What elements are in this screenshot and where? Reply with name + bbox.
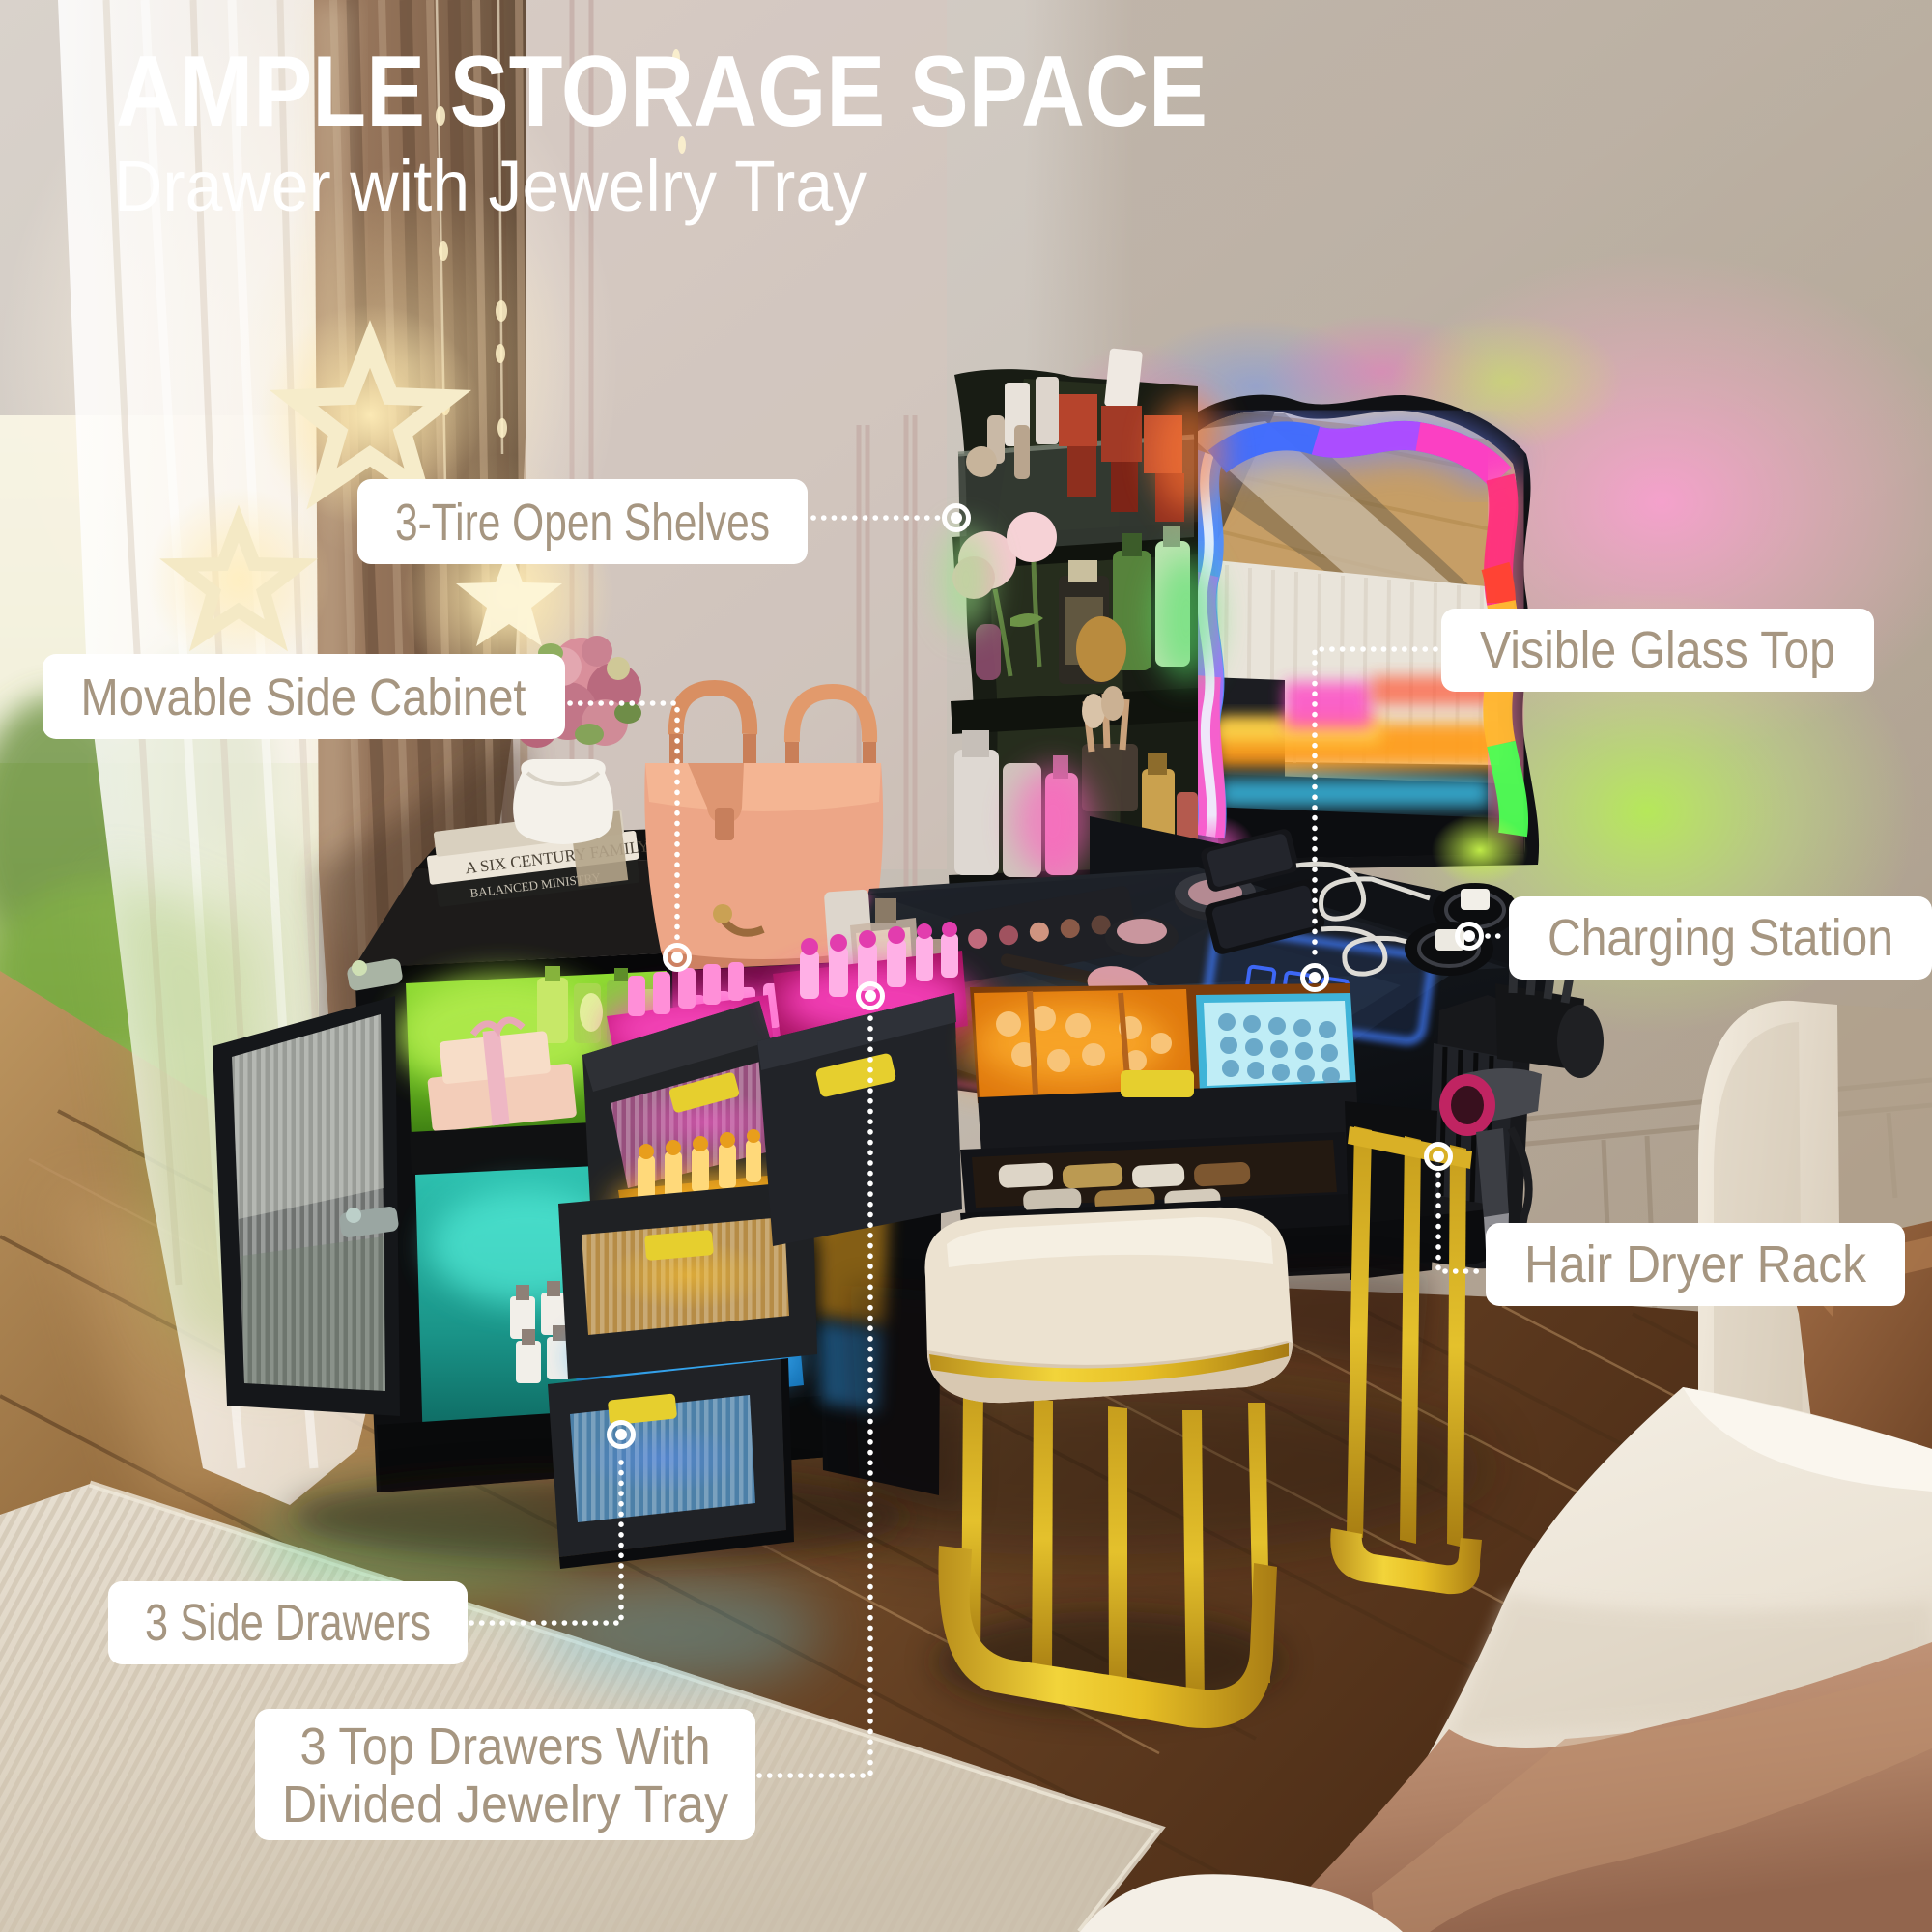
svg-text:Divided Jewelry Tray: Divided Jewelry Tray <box>282 1776 728 1833</box>
svg-text:Visible Glass Top: Visible Glass Top <box>1480 621 1835 679</box>
svg-text:3-Tire Open Shelves: 3-Tire Open Shelves <box>395 494 770 552</box>
svg-text:AMPLE STORAGE SPACE: AMPLE STORAGE SPACE <box>116 36 1207 148</box>
svg-text:Movable Side Cabinet: Movable Side Cabinet <box>81 668 526 726</box>
svg-text:Charging Station: Charging Station <box>1548 909 1893 967</box>
svg-text:3 Side Drawers: 3 Side Drawers <box>145 1594 431 1652</box>
svg-text:Drawer with Jewelry Tray: Drawer with Jewelry Tray <box>114 146 867 226</box>
svg-text:Hair Dryer Rack: Hair Dryer Rack <box>1524 1236 1867 1293</box>
svg-text:3 Top Drawers With: 3 Top Drawers With <box>300 1718 711 1776</box>
